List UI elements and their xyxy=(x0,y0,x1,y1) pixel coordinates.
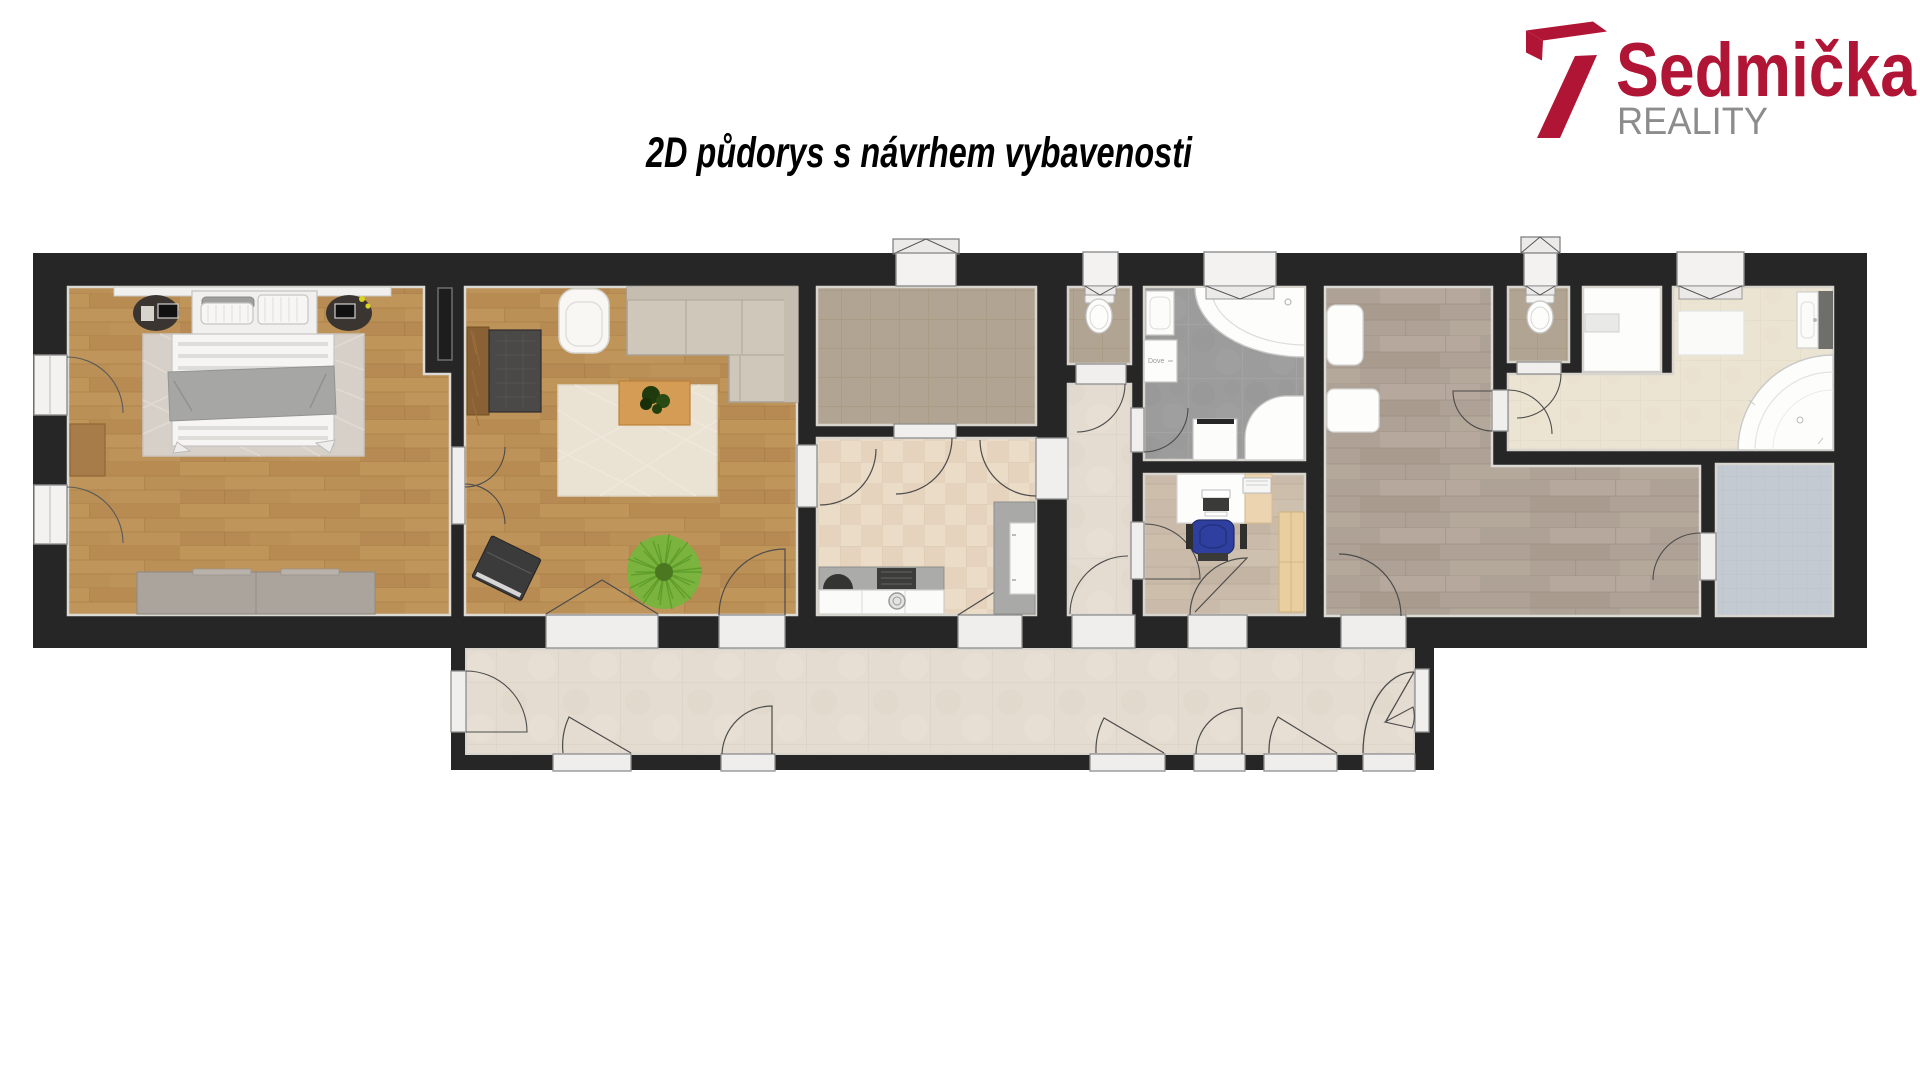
svg-text:REALITY: REALITY xyxy=(1617,101,1768,143)
svg-text:2D půdorys s návrhem vybavenos: 2D půdorys s návrhem vybavenosti xyxy=(645,129,1193,177)
svg-text:Dove: Dove xyxy=(1148,358,1164,365)
